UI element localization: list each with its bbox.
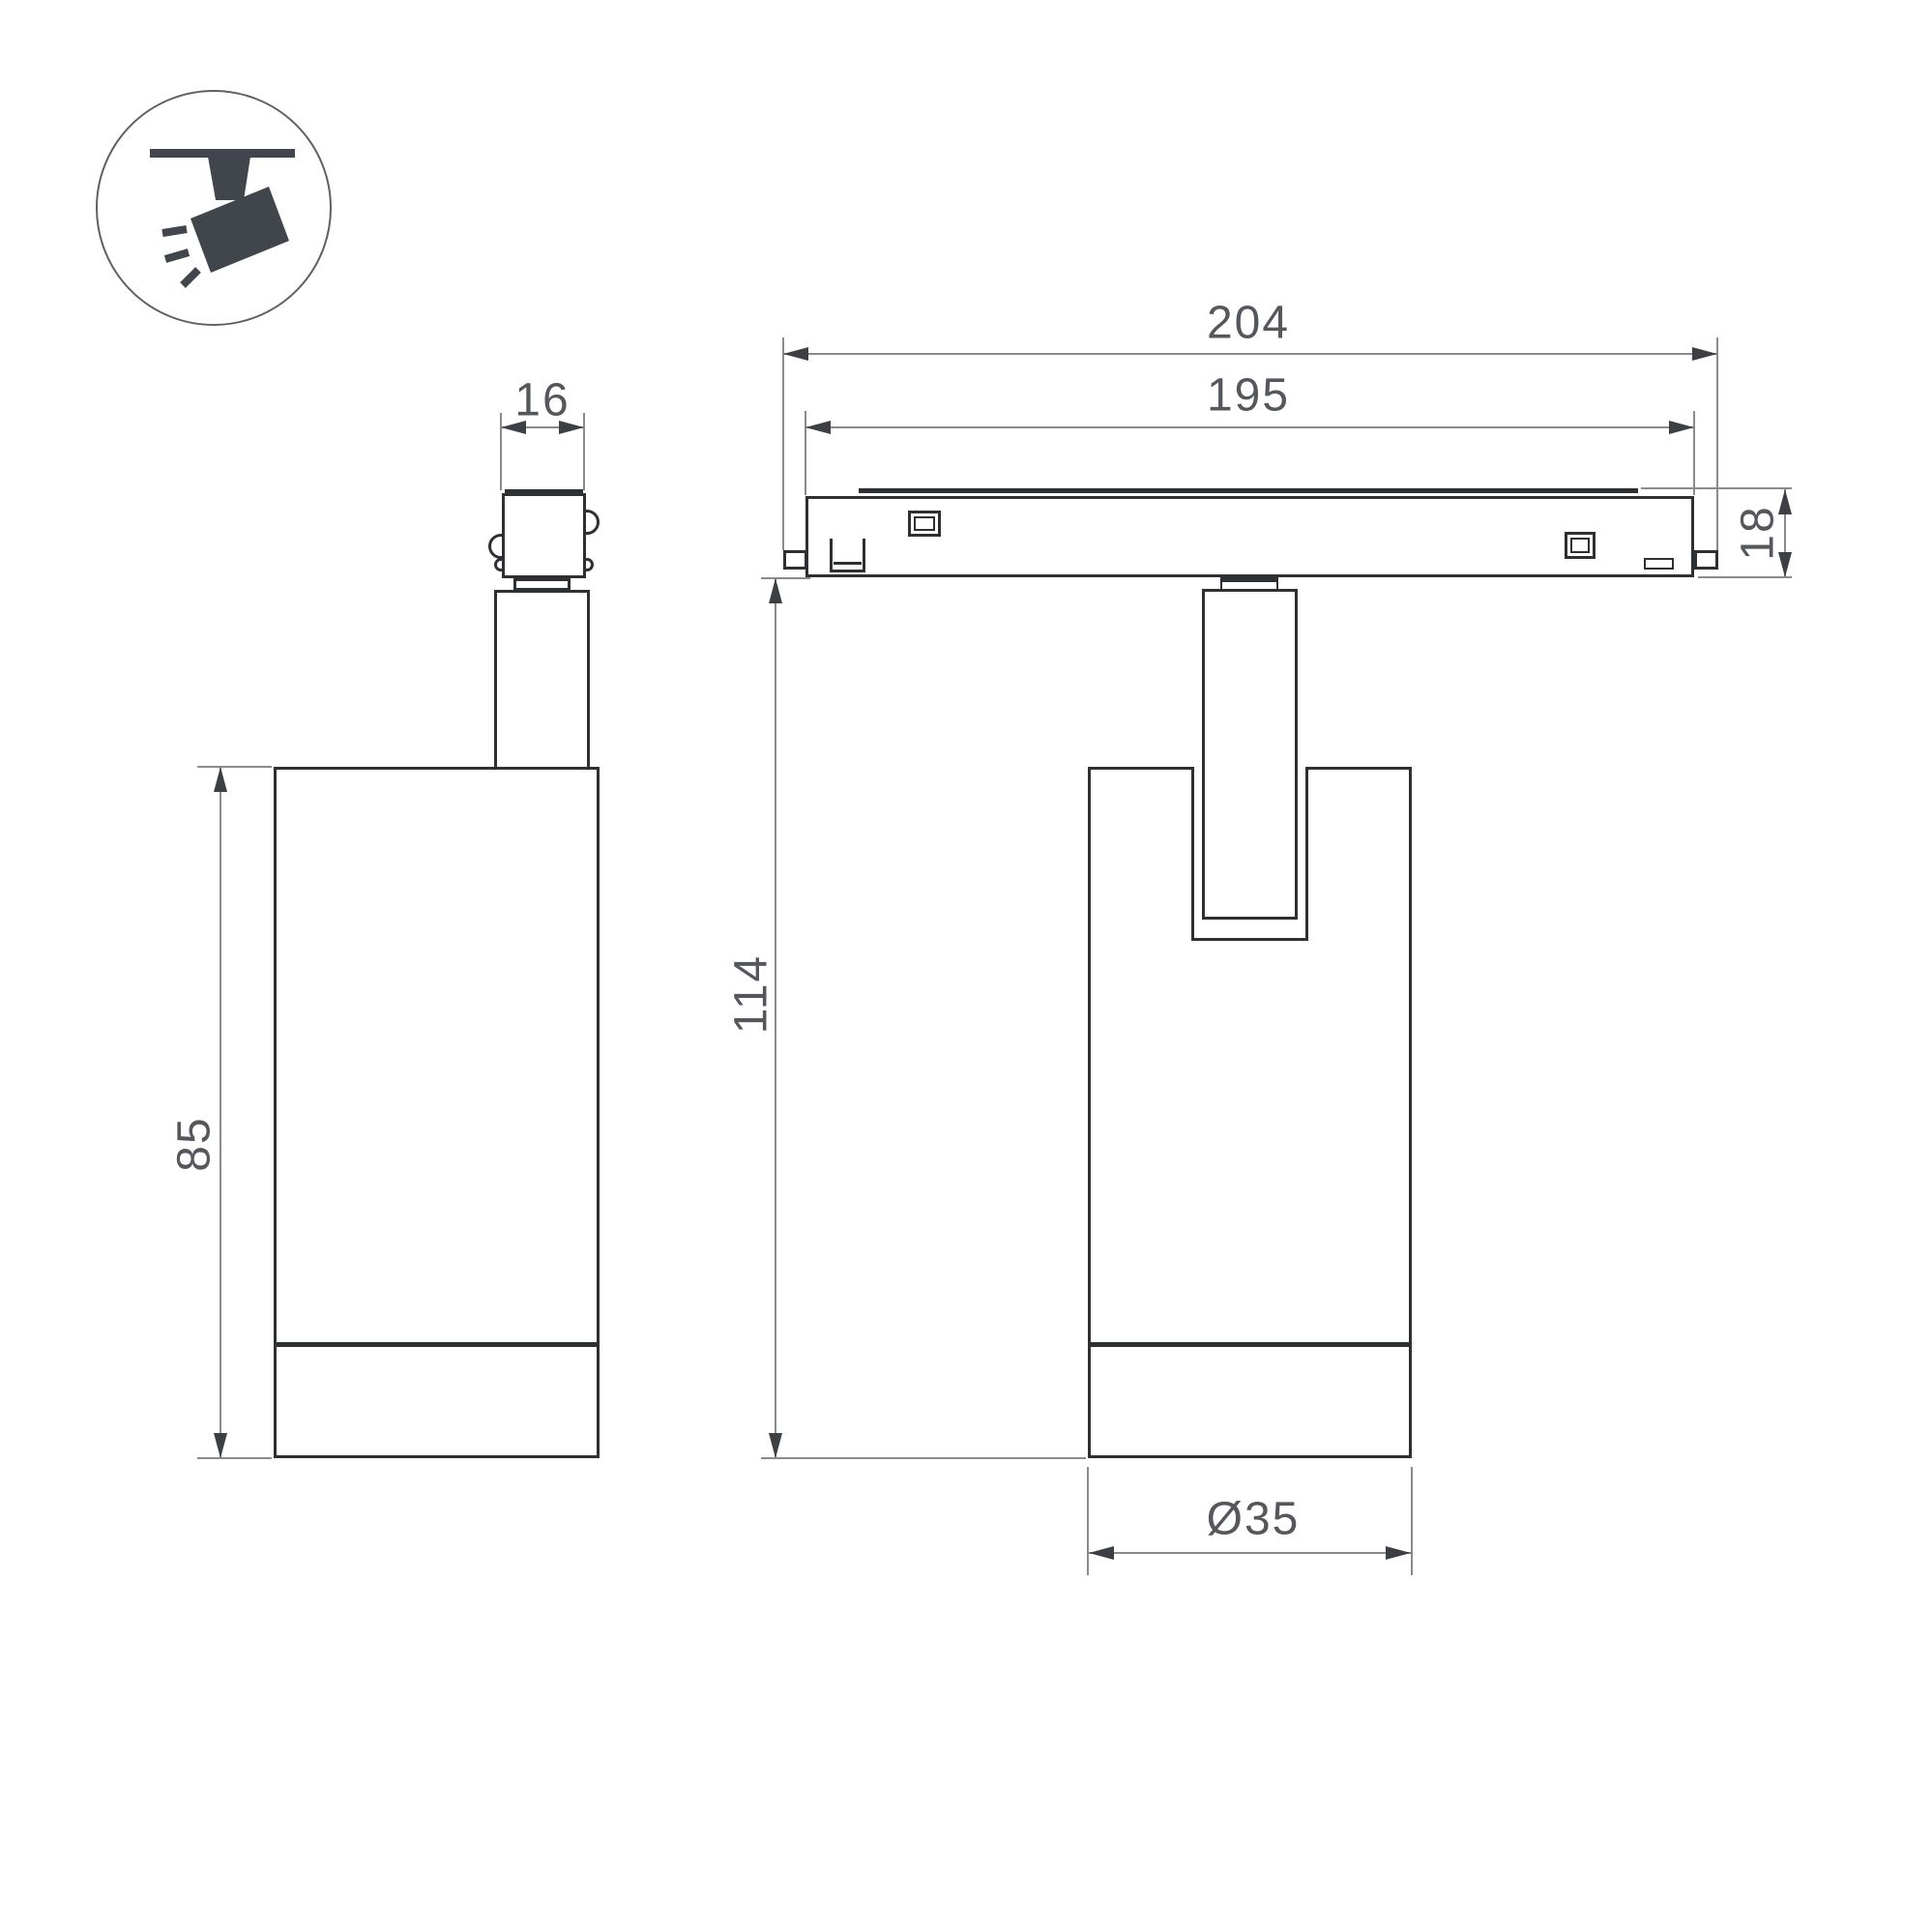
dimension-arrow bbox=[1692, 347, 1717, 361]
dimension-arrow bbox=[214, 767, 227, 792]
dim-label-body-height: 85 bbox=[168, 1116, 221, 1171]
icon-light-ray bbox=[162, 229, 187, 233]
front-body-trim-line bbox=[1088, 1342, 1412, 1347]
dimension-arrow bbox=[783, 347, 808, 361]
dimension-arrow bbox=[1669, 421, 1694, 434]
dimension-arrow bbox=[769, 578, 782, 603]
extension-line bbox=[761, 1457, 1086, 1459]
dimension-arrow bbox=[1089, 1546, 1114, 1560]
front-connector-top-bar bbox=[1220, 577, 1278, 582]
spotlight-icon-circle bbox=[96, 90, 332, 326]
extension-line bbox=[782, 337, 784, 550]
front-track-end-tab-left bbox=[783, 550, 807, 570]
extension-line bbox=[1411, 1467, 1413, 1575]
side-collar bbox=[513, 578, 571, 591]
icon-track-stem bbox=[208, 157, 250, 200]
front-track-window-right-inner bbox=[1570, 538, 1590, 553]
side-body bbox=[274, 767, 600, 1458]
dim-label-body-diameter: Ø35 bbox=[1207, 1493, 1301, 1546]
dim-label-total-height: 114 bbox=[725, 954, 778, 1035]
front-track-body bbox=[805, 496, 1694, 577]
dimension-arrow bbox=[1386, 1546, 1411, 1560]
dim-label-adapter-width: 16 bbox=[514, 374, 570, 427]
track-spotlight-icon bbox=[98, 92, 330, 324]
dim-label-track-height: 18 bbox=[1732, 505, 1785, 560]
front-track-end-tab-right bbox=[1694, 550, 1718, 570]
front-track-window-left-inner bbox=[914, 516, 935, 531]
extension-line bbox=[197, 1457, 272, 1459]
dimension-arrow bbox=[769, 1433, 782, 1458]
icon-lamp-head bbox=[190, 187, 289, 273]
side-body-trim-line bbox=[274, 1342, 600, 1347]
side-stem bbox=[494, 590, 590, 770]
front-track-clip-inner-line bbox=[834, 562, 862, 565]
front-track-top-plate bbox=[859, 488, 1638, 493]
dimension-line bbox=[1089, 1552, 1411, 1554]
dim-label-track-inner: 195 bbox=[1207, 369, 1290, 423]
front-stem bbox=[1202, 589, 1298, 920]
front-track-slot bbox=[1644, 558, 1674, 570]
front-track-clip bbox=[830, 539, 865, 572]
icon-light-ray bbox=[183, 270, 198, 285]
extension-line bbox=[1641, 487, 1792, 489]
dimension-line bbox=[783, 353, 1717, 355]
icon-light-ray bbox=[165, 252, 189, 259]
dimension-arrow bbox=[805, 421, 831, 434]
technical-drawing-canvas: 16 85 204 195 18 114 bbox=[0, 0, 1932, 1932]
dimension-line bbox=[805, 426, 1694, 428]
extension-line bbox=[197, 766, 272, 768]
side-track-adapter bbox=[502, 493, 586, 578]
dimension-line bbox=[220, 767, 221, 1458]
extension-line bbox=[1716, 337, 1718, 550]
dim-label-track-outer: 204 bbox=[1207, 297, 1290, 350]
icon-ceiling-bar bbox=[150, 149, 295, 158]
dimension-arrow bbox=[214, 1433, 227, 1458]
